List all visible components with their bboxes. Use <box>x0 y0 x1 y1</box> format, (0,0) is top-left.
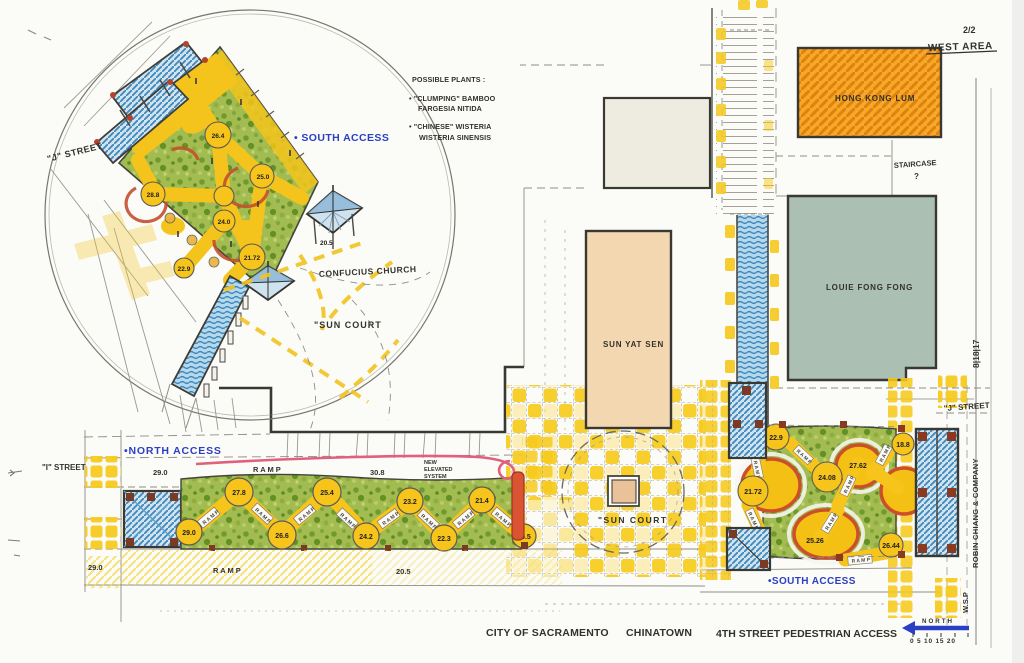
svg-text:22.9: 22.9 <box>769 435 783 442</box>
svg-text:• SOUTH ACCESS: • SOUTH ACCESS <box>294 132 389 144</box>
svg-text:27.62: 27.62 <box>849 463 867 470</box>
svg-text:21.4: 21.4 <box>475 498 489 505</box>
svg-text:26.44: 26.44 <box>882 543 900 550</box>
svg-text:24.0: 24.0 <box>218 219 231 226</box>
svg-text:• "CLUMPING" BAMBOO: • "CLUMPING" BAMBOO <box>409 94 496 103</box>
svg-text:28.8: 28.8 <box>147 192 160 199</box>
svg-text:22.3: 22.3 <box>437 536 451 543</box>
svg-text:29.0: 29.0 <box>88 563 103 572</box>
svg-text:18.8: 18.8 <box>896 442 910 449</box>
svg-text:?: ? <box>914 172 919 181</box>
svg-text:R A M P: R A M P <box>253 465 281 474</box>
svg-text:24.08: 24.08 <box>818 475 836 482</box>
svg-text:25.0: 25.0 <box>257 174 270 181</box>
svg-text:30.8: 30.8 <box>370 468 385 477</box>
svg-text:26.4: 26.4 <box>212 133 225 140</box>
svg-text:0 5 10 15 20: 0 5 10 15 20 <box>910 638 956 645</box>
svg-text:SUN YAT SEN: SUN YAT SEN <box>603 340 664 349</box>
svg-text:ROBIN CHIANG & COMPANY: ROBIN CHIANG & COMPANY <box>971 458 980 568</box>
svg-text:24.2: 24.2 <box>359 534 373 541</box>
svg-text:• "CHINESE" WISTERIA: • "CHINESE" WISTERIA <box>409 122 491 131</box>
svg-text:R A M P: R A M P <box>213 566 241 575</box>
svg-text:20.5: 20.5 <box>396 567 411 576</box>
svg-text:•SOUTH ACCESS: •SOUTH ACCESS <box>768 576 856 587</box>
svg-text:CITY OF SACRAMENTO: CITY OF SACRAMENTO <box>486 627 609 639</box>
svg-text:27.8: 27.8 <box>232 490 246 497</box>
svg-text:8|18|17: 8|18|17 <box>971 339 981 368</box>
svg-text:21.72: 21.72 <box>244 255 261 262</box>
svg-text:21.72: 21.72 <box>744 489 762 496</box>
svg-text:25.4: 25.4 <box>320 490 334 497</box>
svg-text:25.26: 25.26 <box>806 538 824 545</box>
svg-text:HONG KONG LUM: HONG KONG LUM <box>835 94 915 103</box>
svg-text:29.0: 29.0 <box>153 468 168 477</box>
svg-text:26.6: 26.6 <box>275 533 289 540</box>
svg-text:SYSTEM: SYSTEM <box>424 474 447 480</box>
svg-text:20.5: 20.5 <box>320 240 333 247</box>
svg-text:"SUN COURT: "SUN COURT <box>598 515 668 525</box>
svg-text:29.0: 29.0 <box>182 530 196 537</box>
svg-text:NORTH: NORTH <box>922 618 954 625</box>
svg-text:2/2: 2/2 <box>963 25 976 35</box>
svg-text:W.S.P: W.S.P <box>961 592 970 613</box>
svg-text:"SUN COURT: "SUN COURT <box>314 320 382 330</box>
svg-text:"I" STREET: "I" STREET <box>42 463 86 472</box>
svg-text:FARGESIA NITIDA: FARGESIA NITIDA <box>418 104 482 113</box>
svg-text:NEW: NEW <box>424 460 438 466</box>
svg-text:LOUIE FONG FONG: LOUIE FONG FONG <box>826 283 913 292</box>
svg-text:POSSIBLE PLANTS :: POSSIBLE PLANTS : <box>412 75 485 84</box>
svg-text:WISTERIA SINENSIS: WISTERIA SINENSIS <box>419 133 491 142</box>
svg-text:23.2: 23.2 <box>403 499 417 506</box>
svg-text:22.9: 22.9 <box>178 266 191 273</box>
svg-text:CHINATOWN: CHINATOWN <box>626 627 692 639</box>
svg-text:4TH STREET PEDESTRIAN ACCESS: 4TH STREET PEDESTRIAN ACCESS <box>716 628 897 640</box>
svg-text:ELEVATED: ELEVATED <box>424 467 453 473</box>
svg-text:•NORTH ACCESS: •NORTH ACCESS <box>124 445 222 457</box>
